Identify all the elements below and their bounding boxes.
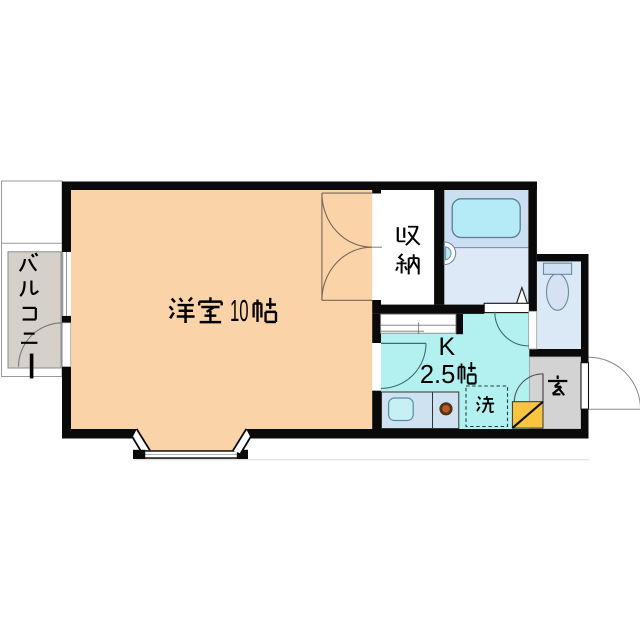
svg-text:10: 10: [230, 294, 249, 328]
svg-text:K: K: [438, 333, 455, 361]
svg-text:2.5: 2.5: [420, 361, 455, 389]
